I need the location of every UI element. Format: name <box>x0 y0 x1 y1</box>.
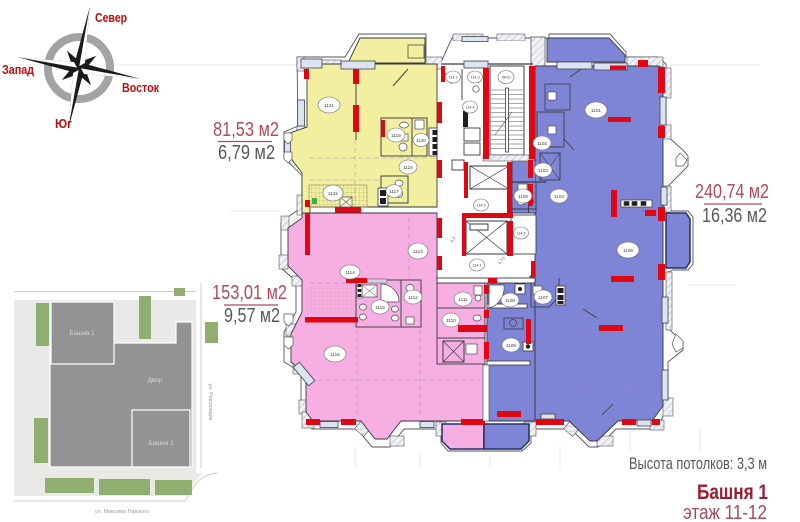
svg-text:1115: 1115 <box>375 305 385 310</box>
svg-text:Башня 2: Башня 2 <box>148 440 174 447</box>
svg-text:1112: 1112 <box>408 295 418 300</box>
svg-text:114.1: 114.1 <box>472 264 481 268</box>
svg-text:1106: 1106 <box>623 248 633 253</box>
svg-text:ЛК10: ЛК10 <box>502 76 511 80</box>
svg-text:1104: 1104 <box>554 194 564 199</box>
svg-text:114.4: 114.4 <box>465 106 474 110</box>
svg-text:1108: 1108 <box>505 298 515 303</box>
svg-text:1109: 1109 <box>506 343 516 348</box>
svg-text:1116: 1116 <box>330 352 340 357</box>
svg-text:ул. Революции: ул. Революции <box>207 383 213 420</box>
svg-text:1107: 1107 <box>538 295 548 300</box>
svg-text:16,36 м2: 16,36 м2 <box>702 205 767 227</box>
svg-text:9,57 м2: 9,57 м2 <box>224 305 280 327</box>
svg-text:114.3: 114.3 <box>470 76 479 80</box>
svg-text:114.5: 114.5 <box>476 204 485 208</box>
svg-text:114.6: 114.6 <box>516 232 525 236</box>
svg-text:Север: Север <box>95 10 127 25</box>
svg-text:ул. Максима Горького: ул. Максима Горького <box>95 509 149 515</box>
svg-text:1121: 1121 <box>324 103 334 108</box>
svg-text:Запад: Запад <box>2 62 35 77</box>
svg-text:1111: 1111 <box>458 297 468 302</box>
svg-text:6,79 м2: 6,79 м2 <box>218 142 275 164</box>
svg-text:1101: 1101 <box>591 108 601 113</box>
svg-text:81,53 м2: 81,53 м2 <box>213 119 279 141</box>
svg-text:Восток: Восток <box>122 80 159 95</box>
svg-text:114.2: 114.2 <box>448 76 457 80</box>
svg-text:Двор: Двор <box>148 377 163 384</box>
svg-text:240,74 м2: 240,74 м2 <box>695 181 769 203</box>
svg-text:1105: 1105 <box>518 194 528 199</box>
svg-text:1102: 1102 <box>537 141 547 146</box>
svg-text:1114: 1114 <box>345 270 355 275</box>
svg-text:Башня 1: Башня 1 <box>69 330 95 337</box>
svg-text:Башня 1: Башня 1 <box>697 481 768 504</box>
svg-text:Высота потолков: 3,3 м: Высота потолков: 3,3 м <box>629 454 767 473</box>
svg-text:1110: 1110 <box>446 318 456 323</box>
svg-text:1103: 1103 <box>538 168 548 173</box>
svg-text:1120: 1120 <box>416 138 426 143</box>
svg-text:1122: 1122 <box>328 191 338 196</box>
svg-text:1119: 1119 <box>391 133 401 138</box>
svg-text:этаж 11-12: этаж 11-12 <box>683 502 767 522</box>
svg-text:153,01 м2: 153,01 м2 <box>212 282 287 304</box>
svg-text:1118: 1118 <box>403 165 413 170</box>
svg-text:1117: 1117 <box>389 189 399 194</box>
svg-text:Юг: Юг <box>55 116 73 131</box>
svg-text:1113: 1113 <box>413 249 423 254</box>
